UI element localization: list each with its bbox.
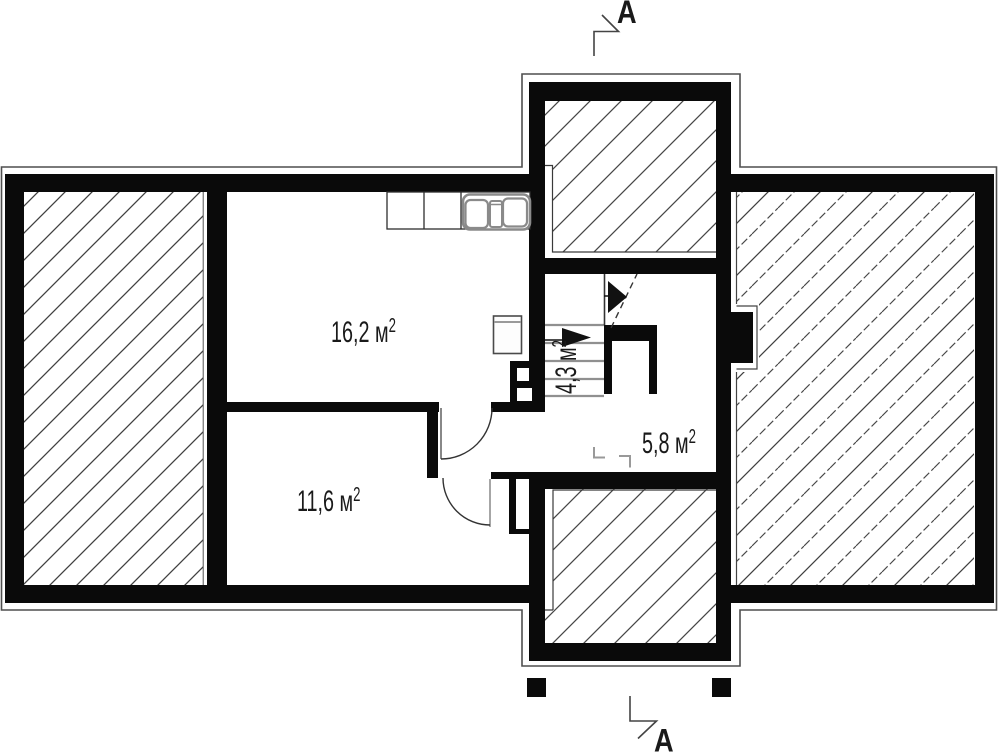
svg-text:4,3 м2: 4,3 м2	[548, 340, 583, 394]
svg-text:A: A	[617, 0, 637, 31]
svg-text:A: A	[654, 723, 674, 753]
svg-text:5,8 м2: 5,8 м2	[642, 425, 696, 460]
svg-text:16,2 м2: 16,2 м2	[331, 314, 396, 349]
svg-text:11,6 м2: 11,6 м2	[297, 483, 361, 518]
